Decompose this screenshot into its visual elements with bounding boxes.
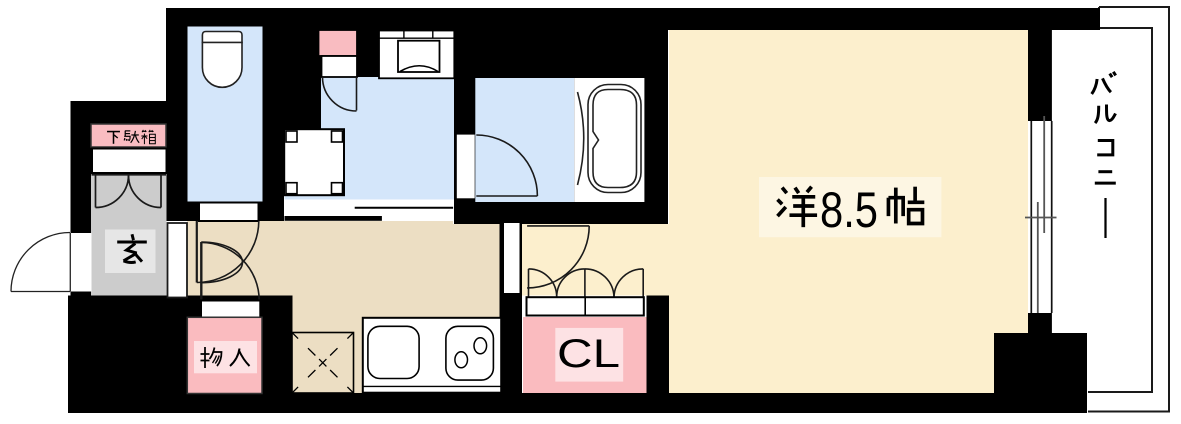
svg-text:8.5: 8.5 <box>820 182 878 238</box>
svg-text:CL: CL <box>557 332 620 376</box>
